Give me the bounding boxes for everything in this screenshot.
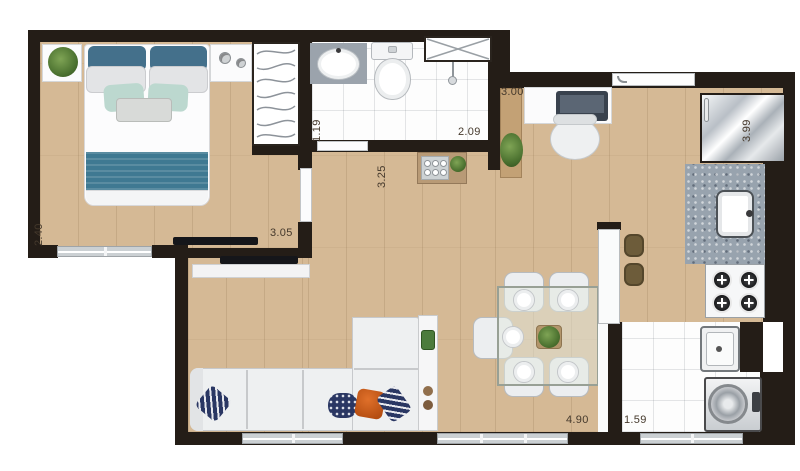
window-mullion [292, 434, 295, 443]
plate-icon [513, 361, 535, 383]
dim-living-depth: 3.25 [376, 150, 388, 188]
sofa-seam [354, 368, 418, 370]
decor-knob-icon [236, 58, 246, 68]
wall-right-low [760, 372, 785, 432]
plate-icon [557, 361, 579, 383]
sink-faucet-icon [746, 210, 753, 217]
service-shaft [763, 322, 783, 372]
washer-door-icon [708, 384, 748, 424]
wardrobe-closet [252, 42, 300, 146]
dim-bathroom-width: 2.09 [458, 126, 481, 138]
wall-living-left [175, 248, 188, 445]
cup-icon [424, 169, 431, 176]
bed-foot-fold [86, 190, 208, 205]
window-mullion [104, 247, 107, 256]
wall-bedroom-bottom-a [28, 245, 58, 258]
plant-icon [48, 47, 78, 77]
burner-icon [739, 293, 759, 313]
cup-icon [432, 169, 439, 176]
bathroom-door [317, 141, 368, 151]
wall-corridor-stub-bottom [298, 222, 312, 250]
cooktop-stove [705, 264, 765, 318]
bedroom-door [300, 168, 312, 222]
sofa-seam [246, 370, 248, 429]
plate-icon [557, 289, 579, 311]
cup-icon [440, 169, 447, 176]
washer-controls [752, 392, 760, 412]
console-decor-dot [423, 386, 433, 396]
wall-service-left [608, 322, 622, 432]
shower-glass-icon [426, 38, 490, 60]
dim-bedroom-depth: 2.40 [33, 206, 45, 246]
sofa-seam [302, 370, 304, 429]
refrigerator-handle [704, 98, 709, 122]
sofa-pillow-dotted [328, 393, 358, 418]
bar-stool [624, 263, 644, 286]
centerpiece-plant-icon [538, 326, 560, 348]
dim-kitchen-entry-width: 3.00 [501, 86, 524, 98]
cup-icon [440, 160, 447, 167]
bar-counter-low [598, 324, 608, 432]
living-window [242, 433, 343, 444]
wall-service-stub [740, 322, 763, 372]
tv-living-icon [220, 256, 298, 264]
dim-bathroom-depth: 1.19 [311, 104, 323, 142]
cup-icon [424, 160, 431, 167]
tv-bedroom-icon [173, 237, 258, 245]
window-mullion [691, 434, 694, 443]
hangers-icon [254, 44, 298, 144]
plate-icon [502, 326, 524, 348]
toilet-bowl-icon [374, 58, 411, 100]
burner-icon [712, 270, 732, 290]
bar-counter [598, 229, 620, 324]
console-green-decor [421, 330, 435, 350]
bedroom-window [57, 246, 152, 257]
toilet-flush-button [388, 46, 397, 53]
wall-right-chunk [763, 160, 785, 322]
burner-icon [739, 270, 759, 290]
floor-plan: 2.40 3.05 1.19 2.09 3.25 3.00 3.99 4.90 … [0, 0, 800, 471]
bed-throw-teal [86, 152, 208, 190]
laptop-screen [560, 95, 604, 113]
cup-icon [432, 160, 439, 167]
bed-pillow-deco [116, 98, 172, 122]
dim-service-width: 1.59 [624, 414, 647, 426]
burner-icon [712, 293, 732, 313]
faucet-icon [336, 48, 341, 53]
dim-bedroom-width: 3.05 [270, 227, 293, 239]
decor-knob-icon [219, 52, 231, 64]
office-chair-back [553, 114, 597, 125]
shower-head-icon [448, 76, 457, 85]
dim-living-width: 4.90 [566, 414, 589, 426]
service-window [640, 433, 743, 444]
dim-kitchen-side-depth: 3.99 [741, 100, 753, 142]
wall-corridor-stub-top [298, 150, 312, 170]
cup-tray [421, 156, 449, 180]
window-mullion [524, 434, 527, 443]
shower-box [424, 36, 492, 62]
dining-window [437, 433, 568, 444]
tv-console [192, 264, 310, 278]
wall-kitchen-left [488, 85, 500, 170]
plant-icon [500, 133, 523, 167]
plate-icon [513, 289, 535, 311]
console-decor-dot [423, 400, 433, 410]
bar-stool [624, 234, 644, 257]
window-mullion [480, 434, 483, 443]
plant-icon [450, 156, 466, 172]
tank-faucet-icon [716, 346, 722, 352]
